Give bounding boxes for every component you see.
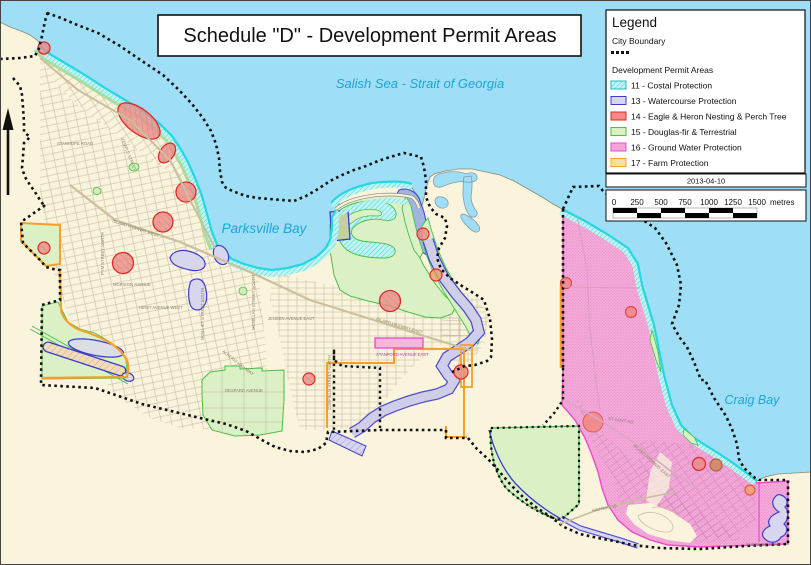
svg-text:STANFORD AVENUE EAST: STANFORD AVENUE EAST [376,352,429,357]
svg-text:1000: 1000 [700,198,718,207]
svg-text:Schedule "D" - Development Per: Schedule "D" - Development Permit Areas [183,25,556,47]
svg-text:CORFIELD STREET NORTH: CORFIELD STREET NORTH [327,355,332,410]
svg-text:14 - Eagle & Heron Nesting & P: 14 - Eagle & Heron Nesting & Perch Tree [631,112,787,122]
svg-text:Development Permit Areas: Development Permit Areas [612,65,713,75]
svg-text:DESPARD AVENUE: DESPARD AVENUE [225,388,263,393]
svg-text:750: 750 [678,198,692,207]
svg-text:MOILLIET STREET SOUTH: MOILLIET STREET SOUTH [200,288,205,340]
svg-text:Parksville Bay: Parksville Bay [222,221,308,236]
svg-text:SURFSIDE DRIVE: SURFSIDE DRIVE [746,542,781,547]
svg-text:13 - Watercourse Protection: 13 - Watercourse Protection [631,96,737,106]
svg-text:STANHOPE ROAD: STANHOPE ROAD [57,141,93,146]
svg-text:HIRST AVENUE WEST: HIRST AVENUE WEST [139,305,183,310]
svg-text:11 - Costal Protection: 11 - Costal Protection [631,81,712,91]
svg-text:16 - Ground Water Protection: 16 - Ground Water Protection [631,143,742,153]
svg-text:2013-04-10: 2013-04-10 [687,177,725,186]
svg-text:City Boundary: City Boundary [612,36,666,46]
svg-text:15 - Douglas-fir & Terrestrial: 15 - Douglas-fir & Terrestrial [631,127,737,137]
svg-text:500: 500 [654,198,668,207]
svg-text:MCMILLAN STREET SOUTH: MCMILLAN STREET SOUTH [251,275,256,330]
svg-text:Salish Sea - Strait of Georgia: Salish Sea - Strait of Georgia [336,76,504,91]
svg-text:PYM STREET NORTH: PYM STREET NORTH [100,232,105,275]
svg-text:1250: 1250 [724,198,742,207]
svg-text:Craig Bay: Craig Bay [725,393,781,407]
svg-text:17 - Farm Protection: 17 - Farm Protection [631,158,709,168]
svg-text:Legend: Legend [612,15,657,30]
svg-text:MORISON AVENUE: MORISON AVENUE [113,282,151,287]
svg-text:metres: metres [770,198,794,207]
svg-text:JENSEN AVENUE EAST: JENSEN AVENUE EAST [268,316,315,321]
svg-text:250: 250 [630,198,644,207]
svg-text:1500: 1500 [748,198,766,207]
svg-text:0: 0 [612,198,617,207]
